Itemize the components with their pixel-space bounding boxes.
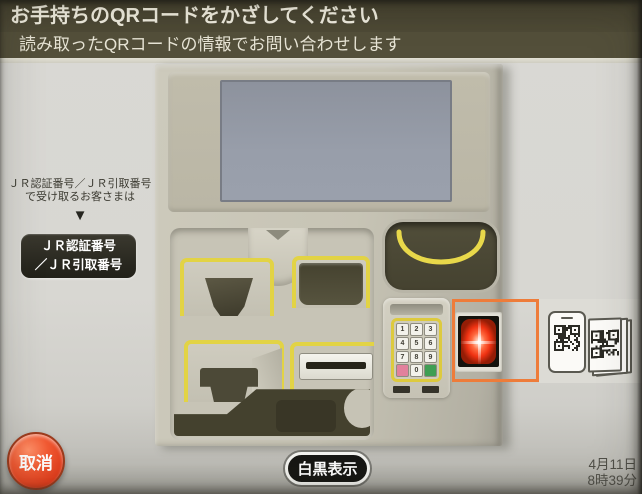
qr-reader-highlight-box: [452, 299, 539, 382]
booklet-qr-icon: [588, 317, 632, 375]
kiosk-screen: お手持ちのQRコードをかざしてください 読み取ったQRコードの情報でお問い合わせ…: [0, 0, 642, 494]
qr-code-graphic: [591, 330, 619, 359]
keypad-key-6: 6: [424, 337, 437, 350]
bw-display-button[interactable]: 白黒表示: [285, 452, 370, 485]
keypad-grid: 1234567890: [391, 318, 442, 382]
ticket-slot: [299, 353, 373, 380]
smartphone-qr-icon: [548, 311, 586, 373]
booklet-cover: [588, 317, 622, 372]
jr-number-button[interactable]: ＪＲ認証番号 ／ＪＲ引取番号: [21, 234, 136, 278]
header-divider: [0, 58, 642, 63]
keypad-key-3: 3: [424, 323, 437, 336]
phone-speaker: [561, 317, 573, 319]
keypad-key-green: [424, 364, 437, 377]
datetime-display: 4月11日 8時39分: [587, 457, 637, 489]
keypad-label-left: [393, 386, 410, 393]
keypad-key-8: 8: [410, 351, 423, 364]
time-label: 8時39分: [587, 473, 637, 489]
cancel-button[interactable]: 取消: [7, 432, 65, 490]
keypad-key-2: 2: [410, 323, 423, 336]
jr-number-note-line1: ＪＲ認証番号／ＪＲ引取番号: [4, 178, 156, 191]
machine-illustration: 1234567890: [155, 64, 503, 446]
keypad-panel: 1234567890: [383, 298, 450, 398]
output-tray-notch: [344, 388, 380, 428]
jr-number-note: ＪＲ認証番号／ＪＲ引取番号 で受け取るお客さまは: [4, 178, 156, 204]
coin-scoop-tray: [385, 222, 497, 290]
arrow-down-icon: ▼: [4, 207, 156, 224]
machine-screen-bezel: [168, 72, 490, 212]
output-tray-inner: [276, 400, 336, 432]
jr-number-button-line2: ／ＪＲ引取番号: [21, 256, 136, 275]
jr-number-note-line2: で受け取るお客さまは: [4, 191, 156, 204]
cancel-button-label: 取消: [19, 449, 53, 474]
page-title: お手持ちのQRコードをかざしてください: [0, 0, 642, 32]
keypad-key-9: 9: [424, 351, 437, 364]
bw-display-button-label: 白黒表示: [297, 458, 357, 479]
keypad-key-1: 1: [396, 323, 409, 336]
keypad-key-4: 4: [396, 337, 409, 350]
keypad-key-0: 0: [410, 364, 423, 377]
keypad-slot: [390, 304, 443, 315]
scoop-curve-icon: [393, 228, 489, 284]
page-subtitle: 読み取ったQRコードの情報でお問い合わせします: [0, 32, 642, 58]
keypad-key-7: 7: [396, 351, 409, 364]
slot-top-left: [180, 258, 274, 316]
machine-slot-panel: [170, 228, 374, 440]
date-label: 4月11日: [587, 457, 637, 473]
machine-screen: [220, 80, 452, 202]
slot-opening: [205, 278, 253, 316]
ticket-slit: [306, 362, 366, 369]
keypad-label-right: [422, 386, 439, 393]
qr-code-graphic: [554, 325, 580, 351]
keypad-key-5: 5: [410, 337, 423, 350]
keypad-key-pink: [396, 364, 409, 377]
slot-top-right: [292, 256, 370, 308]
jr-number-button-line1: ＪＲ認証番号: [21, 237, 136, 256]
slot-opening: [299, 263, 363, 305]
